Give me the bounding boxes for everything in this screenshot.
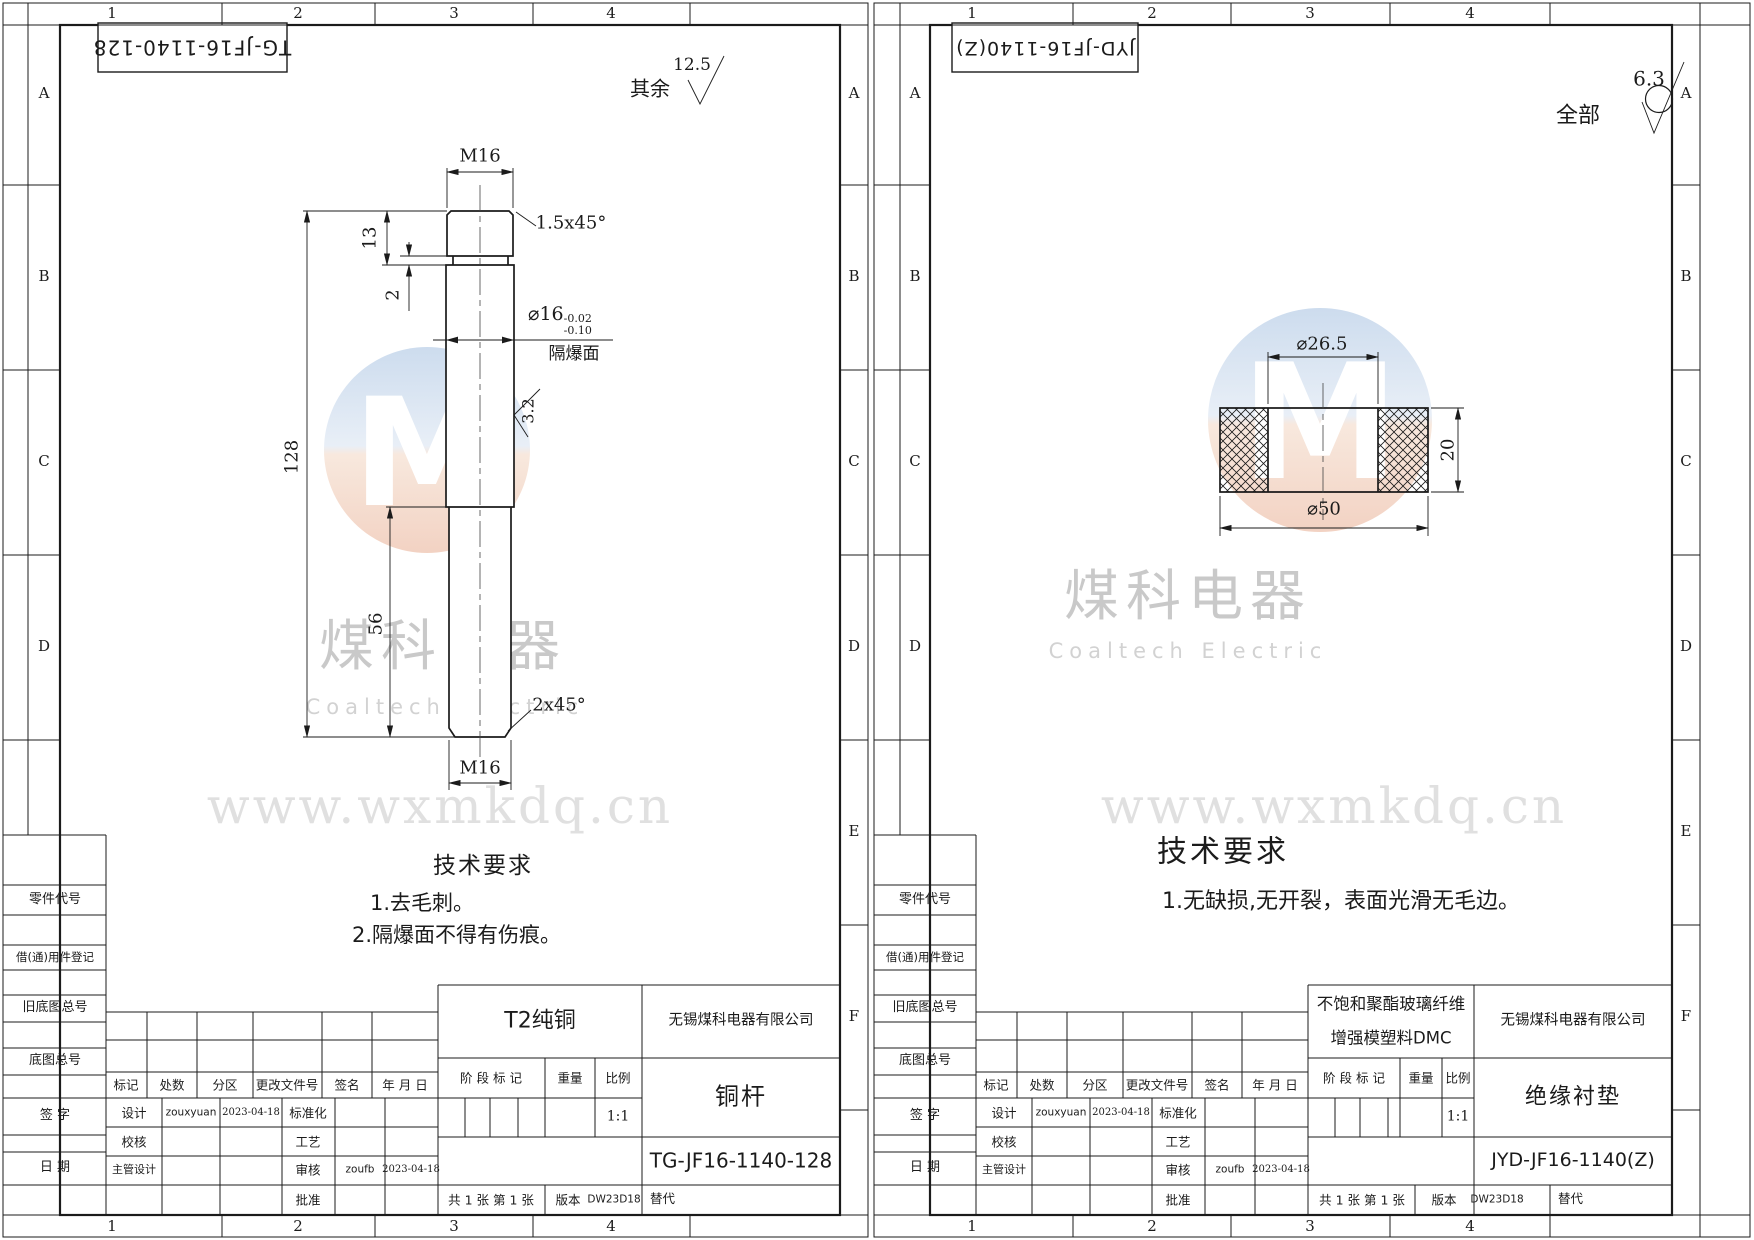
tech-item: 1.去毛刺。 (370, 892, 474, 914)
zone-row: A (849, 86, 860, 102)
sig-design-label: 设计 (121, 1106, 146, 1119)
version-value: DW23D18 (1470, 1194, 1523, 1205)
label-old-master: 旧底图总号 (892, 1001, 957, 1015)
zone-col: 3 (1305, 1219, 1315, 1235)
sig-design-name: zouxyuan (166, 1107, 217, 1118)
zone-row: C (1680, 454, 1691, 470)
sig-std-label: 标准化 (289, 1106, 327, 1119)
material: T2纯铜 (504, 1009, 575, 1032)
sig-design-label: 设计 (991, 1106, 1016, 1119)
sig-std-label: 标准化 (1159, 1106, 1197, 1119)
drawing-page: 煤科电器 Coaltech Electric www.wxmkdq.cn M (0, 0, 1754, 1240)
dim-diameter-value: ⌀16 (528, 303, 564, 325)
sig-process-label: 工艺 (1165, 1135, 1190, 1148)
dim-height: 20 (1440, 439, 1459, 462)
sheet-copper-rod: 煤科电器 Coaltech Electric www.wxmkdq.cn M (0, 0, 870, 1240)
zone-col: 4 (606, 1219, 616, 1235)
label-master-no: 底图总号 (899, 1054, 951, 1068)
label-signature: 签 字 (910, 1109, 940, 1123)
zone-row: D (1680, 639, 1692, 655)
zone-row: C (909, 454, 920, 470)
zone-col: 4 (1465, 1219, 1475, 1235)
label-date: 日 期 (40, 1161, 70, 1175)
rev-header: 分区 (212, 1078, 237, 1091)
zone-row: F (1681, 1009, 1691, 1025)
zone-col: 2 (1147, 6, 1157, 22)
finish-prefix: 全部 (1556, 104, 1600, 127)
version-label: 版本 (555, 1193, 580, 1206)
rev-header: 处数 (1029, 1078, 1054, 1091)
stamp-text: TG-JF16-1140-128 (93, 37, 291, 58)
rev-header: 签名 (1204, 1078, 1229, 1091)
left-sheet-lines: M (0, 0, 870, 1240)
zone-col: 2 (293, 1219, 303, 1235)
zone-row: B (1680, 269, 1691, 285)
scale-value: 1:1 (1447, 1110, 1470, 1125)
weight-label: 重量 (1408, 1071, 1433, 1084)
zone-row: A (910, 86, 921, 102)
part-number: JYD-JF16-1140(Z) (1491, 1151, 1655, 1171)
zone-row: E (849, 824, 860, 840)
zone-row: E (1681, 824, 1692, 840)
sig-audit-label: 审核 (1165, 1163, 1190, 1176)
zone-row: D (38, 639, 50, 655)
finish-prefix: 其余 (630, 79, 670, 100)
label-date: 日 期 (910, 1161, 940, 1175)
zone-col: 3 (1305, 6, 1315, 22)
tech-title: 技术要求 (433, 854, 533, 878)
zone-row: A (1681, 86, 1692, 102)
sheets-note: 共 1 张 第 1 张 (448, 1193, 534, 1206)
dim-thread-top: M16 (459, 148, 500, 167)
zone-row: B (848, 269, 859, 285)
rev-header: 标记 (113, 1078, 138, 1091)
zone-col: 3 (449, 6, 459, 22)
tech-item: 1.无缺损,无开裂，表面光滑无毛边。 (1162, 890, 1520, 913)
sig-chief-label: 主管设计 (112, 1164, 156, 1176)
stage-label: 阶 段 标 记 (1323, 1071, 1385, 1084)
label-borrowed-parts: 借(通)用件登记 (16, 951, 94, 963)
rev-header: 更改文件号 (1126, 1078, 1189, 1091)
scale-value: 1:1 (607, 1110, 630, 1125)
zone-col: 4 (1465, 6, 1475, 22)
rev-header: 签名 (334, 1078, 359, 1091)
rev-header: 更改文件号 (256, 1078, 319, 1091)
sig-approve-label: 批准 (1165, 1193, 1190, 1206)
label-master-no: 底图总号 (29, 1054, 81, 1068)
margin-and-titleblock-grid (874, 3, 1750, 1237)
zone-row: D (848, 639, 860, 655)
label-signature: 签 字 (40, 1109, 70, 1123)
scale-label: 比例 (605, 1071, 630, 1084)
weight-label: 重量 (557, 1071, 582, 1084)
zone-row: D (909, 639, 921, 655)
scale-label: 比例 (1445, 1071, 1470, 1084)
sig-check-label: 校核 (991, 1135, 1016, 1148)
zone-col: 2 (293, 6, 303, 22)
sig-approve-label: 批准 (295, 1193, 320, 1206)
dim-tol-lower: -0.10 (564, 325, 592, 337)
dim-surface-finish-body: 3.2 (521, 398, 538, 423)
zone-col: 1 (107, 6, 117, 22)
dim-inner-diameter: ⌀26.5 (1297, 336, 1348, 355)
replace-label: 替代 (1558, 1192, 1583, 1205)
sig-chief-label: 主管设计 (982, 1164, 1026, 1176)
dim-head-length: 13 (362, 227, 381, 250)
dim-chamfer-bottom: 2x45° (532, 697, 586, 716)
company: 无锡煤科电器有限公司 (1501, 1013, 1646, 1028)
margin-and-titleblock-grid (3, 3, 868, 1237)
rev-header: 标记 (983, 1078, 1008, 1091)
dim-outer-diameter: ⌀50 (1307, 501, 1341, 520)
dim-tol-upper: -0.02 (564, 313, 592, 325)
rev-header: 年 月 日 (382, 1078, 427, 1091)
finish-value: 6.3 (1633, 69, 1665, 90)
zone-row: C (848, 454, 859, 470)
hatch-right (1378, 408, 1428, 492)
sig-audit-date: 2023-04-18 (1252, 1165, 1310, 1176)
dim-thread-bottom: M16 (459, 760, 500, 779)
dim-diameter: ⌀16-0.02-0.10 (528, 305, 592, 336)
zone-col: 2 (1147, 1219, 1157, 1235)
sig-audit-date: 2023-04-18 (382, 1165, 440, 1176)
sig-check-label: 校核 (121, 1135, 146, 1148)
material-line2: 增强模塑料DMC (1331, 1029, 1452, 1046)
label-part-code: 零件代号 (29, 893, 81, 907)
zone-col: 1 (967, 6, 977, 22)
sig-audit-label: 审核 (295, 1163, 320, 1176)
material-line1: 不饱和聚酯玻璃纤维 (1317, 995, 1466, 1012)
zone-row: A (39, 86, 50, 102)
dim-groove: 2 (385, 289, 404, 300)
zone-col: 1 (967, 1219, 977, 1235)
sig-design-date: 2023-04-18 (1092, 1108, 1150, 1119)
rev-header: 分区 (1082, 1078, 1107, 1091)
sig-audit-name: zoufb (346, 1164, 375, 1175)
rev-header: 年 月 日 (1252, 1078, 1297, 1091)
sig-audit-name: zoufb (1216, 1164, 1245, 1175)
version-value: DW23D18 (587, 1194, 640, 1205)
zone-row: B (38, 269, 49, 285)
label-part-code: 零件代号 (899, 893, 951, 907)
part-name: 绝缘衬垫 (1525, 1085, 1621, 1108)
tech-item: 2.隔爆面不得有伤痕。 (352, 924, 561, 946)
company: 无锡煤科电器有限公司 (669, 1013, 814, 1028)
right-sheet-lines: M (872, 0, 1754, 1240)
sheets-note: 共 1 张 第 1 张 (1319, 1193, 1405, 1206)
part-name: 铜杆 (715, 1084, 767, 1109)
dim-lower-length: 56 (368, 613, 387, 636)
tech-title: 技术要求 (1157, 836, 1289, 868)
stamp-text: JYD-JF16-1140(Z) (955, 37, 1135, 57)
sig-design-date: 2023-04-18 (222, 1108, 280, 1119)
zone-col: 1 (107, 1219, 117, 1235)
label-old-master: 旧底图总号 (22, 1001, 87, 1015)
part-number: TG-JF16-1140-128 (650, 1151, 832, 1172)
hatch-left (1220, 408, 1268, 492)
dim-total-length: 128 (284, 440, 303, 474)
label-borrowed-parts: 借(通)用件登记 (886, 951, 964, 963)
finish-value: 12.5 (673, 57, 711, 75)
stage-label: 阶 段 标 记 (460, 1071, 522, 1084)
zone-row: F (849, 1009, 859, 1025)
zone-row: B (909, 269, 920, 285)
dim-chamfer-top: 1.5x45° (536, 215, 607, 234)
replace-label: 替代 (650, 1192, 675, 1205)
zone-row: C (38, 454, 49, 470)
version-label: 版本 (1431, 1193, 1456, 1206)
sig-design-name: zouxyuan (1036, 1107, 1087, 1118)
zone-col: 4 (606, 6, 616, 22)
sheet-insulating-gasket: 煤科电器 Coaltech Electric www.wxmkdq.cn M (872, 0, 1754, 1240)
flameproof-face-label: 隔爆面 (549, 346, 600, 364)
zone-col: 3 (449, 1219, 459, 1235)
rev-header: 处数 (159, 1078, 184, 1091)
sig-process-label: 工艺 (295, 1135, 320, 1148)
